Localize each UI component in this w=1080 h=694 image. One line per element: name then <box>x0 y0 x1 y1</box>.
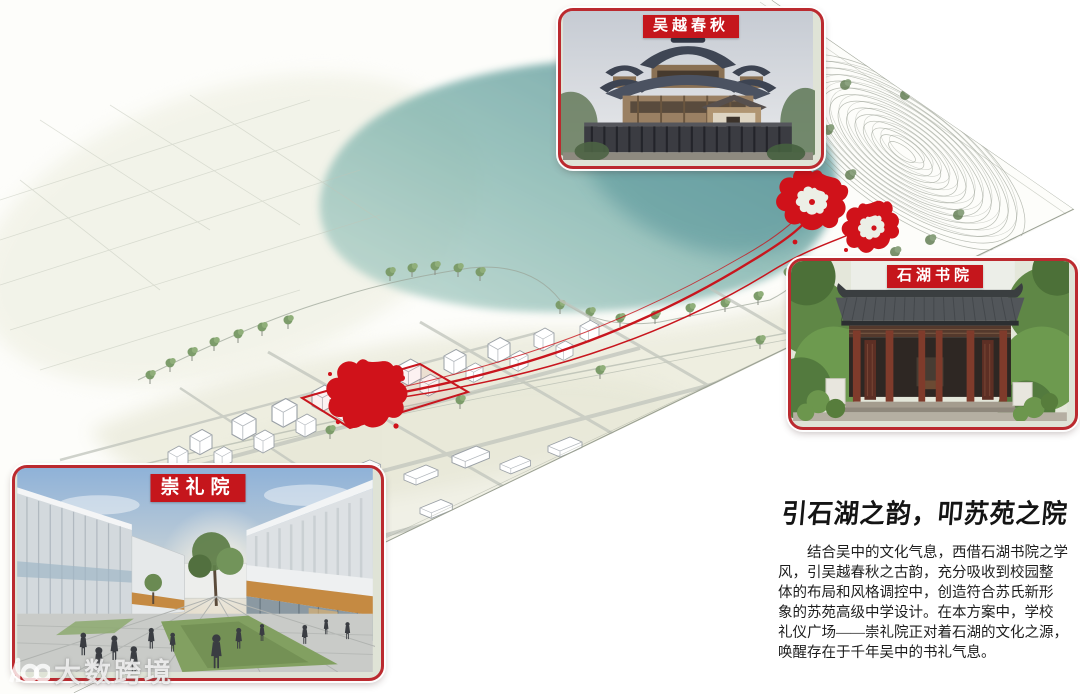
photo-card-chongli: 崇礼院 <box>12 465 384 681</box>
wuyue-label: 吴越春秋 <box>643 15 739 38</box>
chongli-label: 崇礼院 <box>150 474 245 502</box>
photo-card-wuyue: 吴越春秋 <box>558 8 824 169</box>
description-block: 引石湖之韵，叩苏苑之院 结合吴中的文化气息，西借石湖书院之学 风，引吴越春秋之古… <box>778 494 1072 663</box>
paragraph-line: 唤醒存在于千年吴中的书礼气息。 <box>778 643 1072 663</box>
watermark-text: 大数跨境 <box>54 651 174 690</box>
paragraph-line: 风，引吴越春秋之古韵，充分吸收到校园整 <box>778 563 1072 583</box>
calligraphy-title: 引石湖之韵，叩苏苑之院 <box>776 493 1073 531</box>
paragraph-line: 礼仪广场——崇礼院正对着石湖的文化之源， <box>778 623 1072 643</box>
paragraph-line: 结合吴中的文化气息，西借石湖书院之学 <box>778 543 1072 563</box>
photo-card-shihu: 石湖书院 <box>788 258 1078 430</box>
presentation-board: 吴越春秋 <box>0 0 1080 694</box>
shihu-label: 石湖书院 <box>887 265 983 288</box>
watermark-logo-icon <box>6 655 50 687</box>
description-paragraph: 结合吴中的文化气息，西借石湖书院之学 风，引吴越春秋之古韵，充分吸收到校园整 体… <box>778 543 1072 663</box>
paragraph-line: 体的布局和风格调控中，创造符合苏氏新形 <box>778 583 1072 603</box>
watermark: 大数跨境 <box>6 651 174 690</box>
paragraph-line: 象的苏苑高级中学设计。在本方案中，学校 <box>778 603 1072 623</box>
